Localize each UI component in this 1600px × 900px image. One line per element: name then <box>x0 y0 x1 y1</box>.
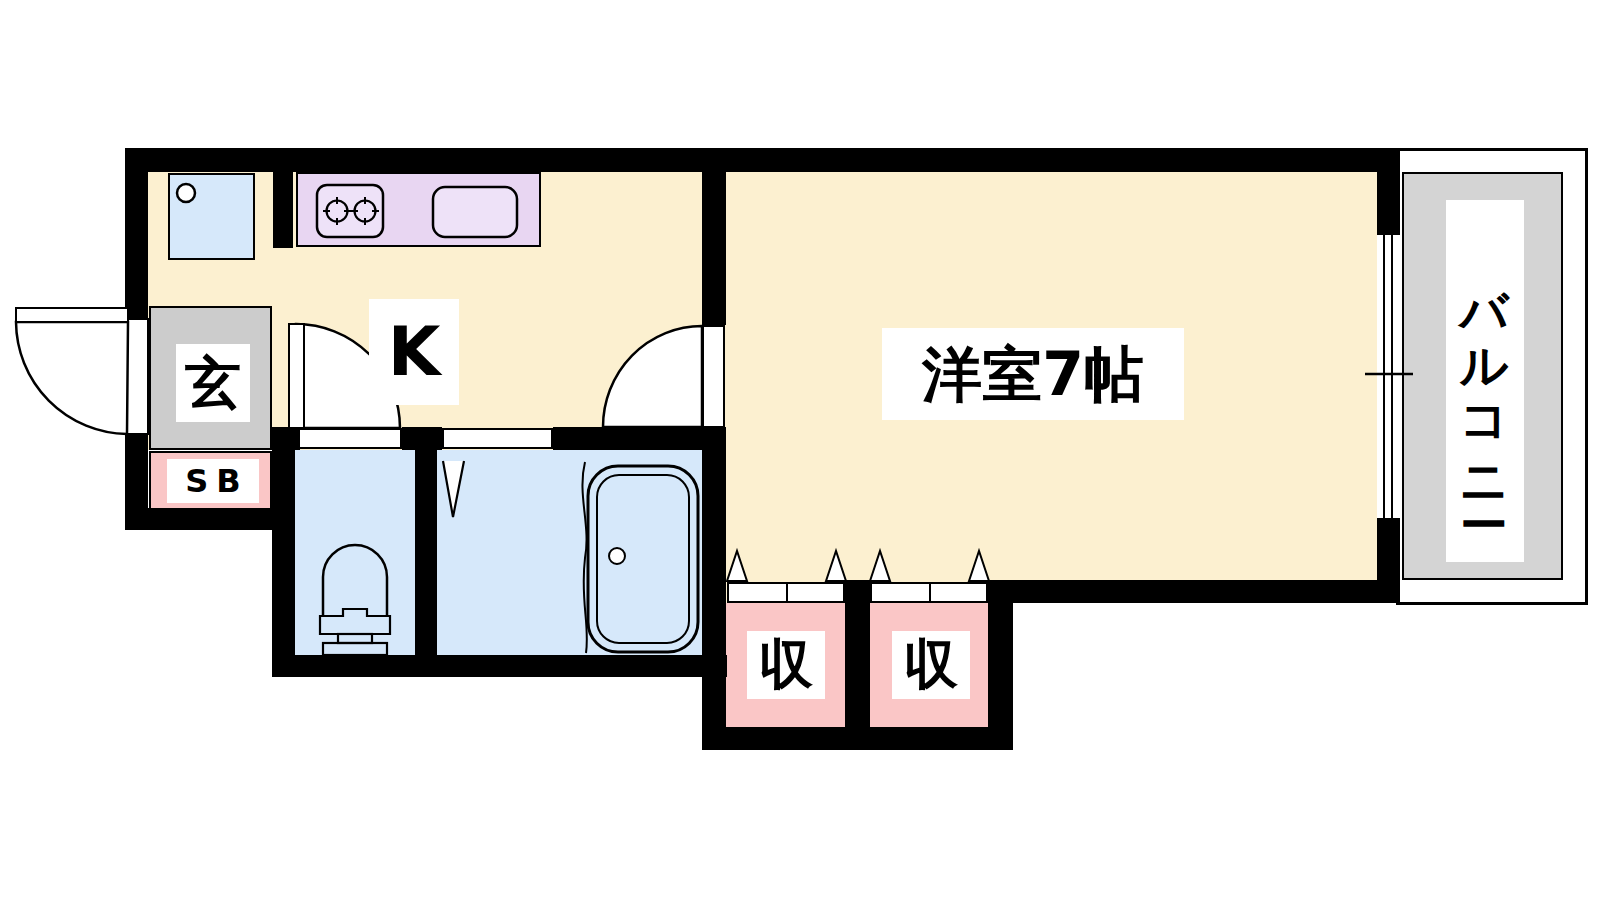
entrance-label: 玄 <box>176 344 250 422</box>
bath-door-opening <box>442 428 553 449</box>
entrance-door-opening <box>126 318 149 435</box>
wall <box>845 580 870 750</box>
main-room-label-text: 洋室7帖 <box>922 344 1144 404</box>
wall <box>402 427 442 450</box>
wall <box>702 172 726 325</box>
wall <box>1377 148 1400 233</box>
toilet-floor <box>295 450 415 677</box>
wall <box>1013 580 1400 603</box>
storage-label-text: 収 <box>904 638 958 692</box>
wall <box>125 148 1400 172</box>
entrance-door-leaf <box>16 308 128 322</box>
wall <box>272 655 727 677</box>
wall <box>125 508 295 530</box>
entrance-door-arc <box>16 322 128 434</box>
closet-door-divider <box>929 584 931 601</box>
wall <box>988 580 1013 750</box>
closet-door-1 <box>727 582 845 603</box>
balcony-label: バルコニー <box>1446 200 1524 562</box>
closet-door-divider <box>786 584 788 601</box>
wall <box>553 427 726 450</box>
wall <box>415 448 437 677</box>
wall <box>270 427 300 450</box>
shoe-box-label: SB <box>167 459 259 503</box>
toilet-door-opening <box>298 428 402 449</box>
wall <box>272 427 295 677</box>
wall <box>125 148 148 320</box>
wall <box>273 172 293 248</box>
shoe-box-label-text: SB <box>185 465 248 497</box>
floor-plan: K 玄 SB 洋室7帖 収 収 バルコニー <box>0 0 1600 900</box>
storage-label-text: 収 <box>759 638 813 692</box>
storage-label-2: 収 <box>892 631 970 699</box>
laundry-pan <box>168 173 255 260</box>
balcony-window <box>1377 233 1400 520</box>
closet-door-2 <box>870 582 988 603</box>
entrance-label-text: 玄 <box>185 355 241 411</box>
wall <box>702 427 726 750</box>
kitchen-counter <box>296 172 541 247</box>
bathroom-floor <box>437 450 702 677</box>
wall <box>1377 520 1400 603</box>
main-room-label: 洋室7帖 <box>882 328 1184 420</box>
kitchen-label: K <box>369 299 459 405</box>
kitchen-label-text: K <box>388 318 441 386</box>
storage-label-1: 収 <box>747 631 825 699</box>
balcony-label-text: バルコニー <box>1461 257 1509 505</box>
